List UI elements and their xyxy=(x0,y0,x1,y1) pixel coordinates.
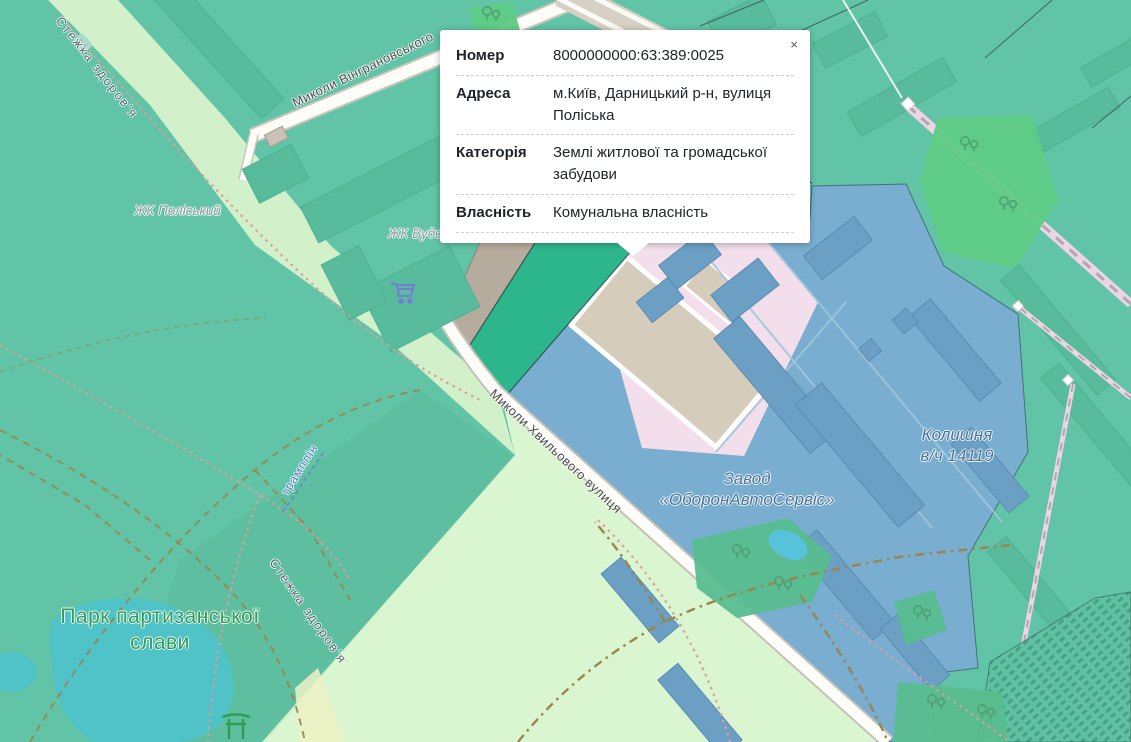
popup-pointer xyxy=(616,242,650,256)
popup-row-ownership: Власність Комунальна власність xyxy=(456,195,794,233)
popup-row-number: Номер 8000000000:63:389:0025 xyxy=(456,38,794,76)
field-value-category: Землі житлової та громадської забудови xyxy=(553,142,794,186)
cadastral-map-app: Миколи Вінграновського Миколи Хвильового… xyxy=(0,0,1131,742)
field-value-ownership: Комунальна власність xyxy=(553,202,794,224)
parcel-info-popup: × Номер 8000000000:63:389:0025 Адреса м.… xyxy=(440,30,810,243)
field-label-number: Номер xyxy=(456,45,553,67)
popup-row-category: Категорія Землі житлової та громадської … xyxy=(456,135,794,195)
field-value-number: 8000000000:63:389:0025 xyxy=(553,45,794,67)
field-label-category: Категорія xyxy=(456,142,553,186)
field-label-address: Адреса xyxy=(456,83,553,127)
field-value-address: м.Київ, Дарницький р-н, вулиця Поліська xyxy=(553,83,794,127)
close-icon[interactable]: × xyxy=(787,35,801,54)
popup-row-address: Адреса м.Київ, Дарницький р-н, вулиця По… xyxy=(456,76,794,136)
field-label-ownership: Власність xyxy=(456,202,553,224)
